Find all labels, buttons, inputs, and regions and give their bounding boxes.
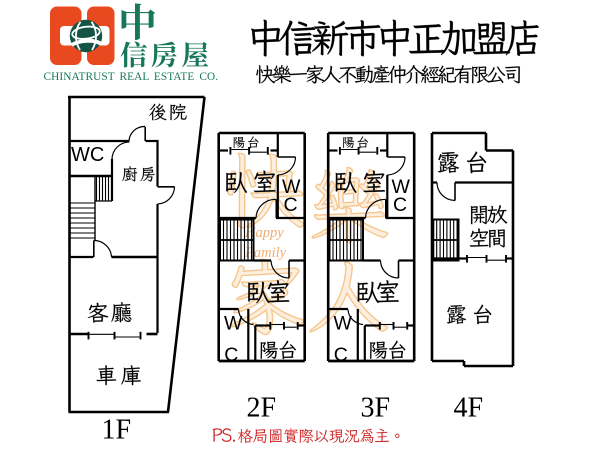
- svg-text:C: C: [393, 194, 407, 216]
- svg-text:W: W: [334, 313, 353, 335]
- svg-text:4F: 4F: [454, 393, 484, 424]
- svg-text:Happy: Happy: [244, 225, 284, 241]
- svg-text:C: C: [224, 344, 238, 366]
- svg-text:W: W: [224, 313, 243, 335]
- svg-text:C: C: [334, 344, 348, 366]
- svg-text:3F: 3F: [361, 393, 391, 424]
- svg-text:Family: Family: [244, 245, 287, 261]
- svg-text:C: C: [284, 194, 298, 216]
- svg-text:WC: WC: [71, 144, 104, 166]
- svg-text:1F: 1F: [102, 415, 132, 446]
- svg-text:2F: 2F: [247, 393, 277, 424]
- svg-text:CHINATRUST REAL ESTATE CO.: CHINATRUST REAL ESTATE CO.: [44, 71, 219, 83]
